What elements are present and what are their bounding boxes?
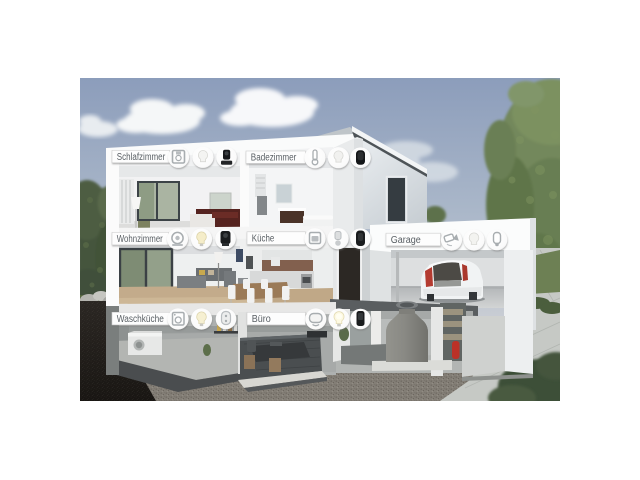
svg-text:Küche: Küche — [252, 234, 275, 245]
svg-text:Schlafzimmer: Schlafzimmer — [117, 152, 166, 163]
svg-text:Waschküche: Waschküche — [117, 314, 164, 325]
svg-text:Wohnzimmer: Wohnzimmer — [117, 234, 164, 245]
svg-text:Garage: Garage — [391, 235, 421, 246]
svg-text:Büro: Büro — [252, 314, 271, 325]
svg-text:Badezimmer: Badezimmer — [251, 153, 297, 164]
